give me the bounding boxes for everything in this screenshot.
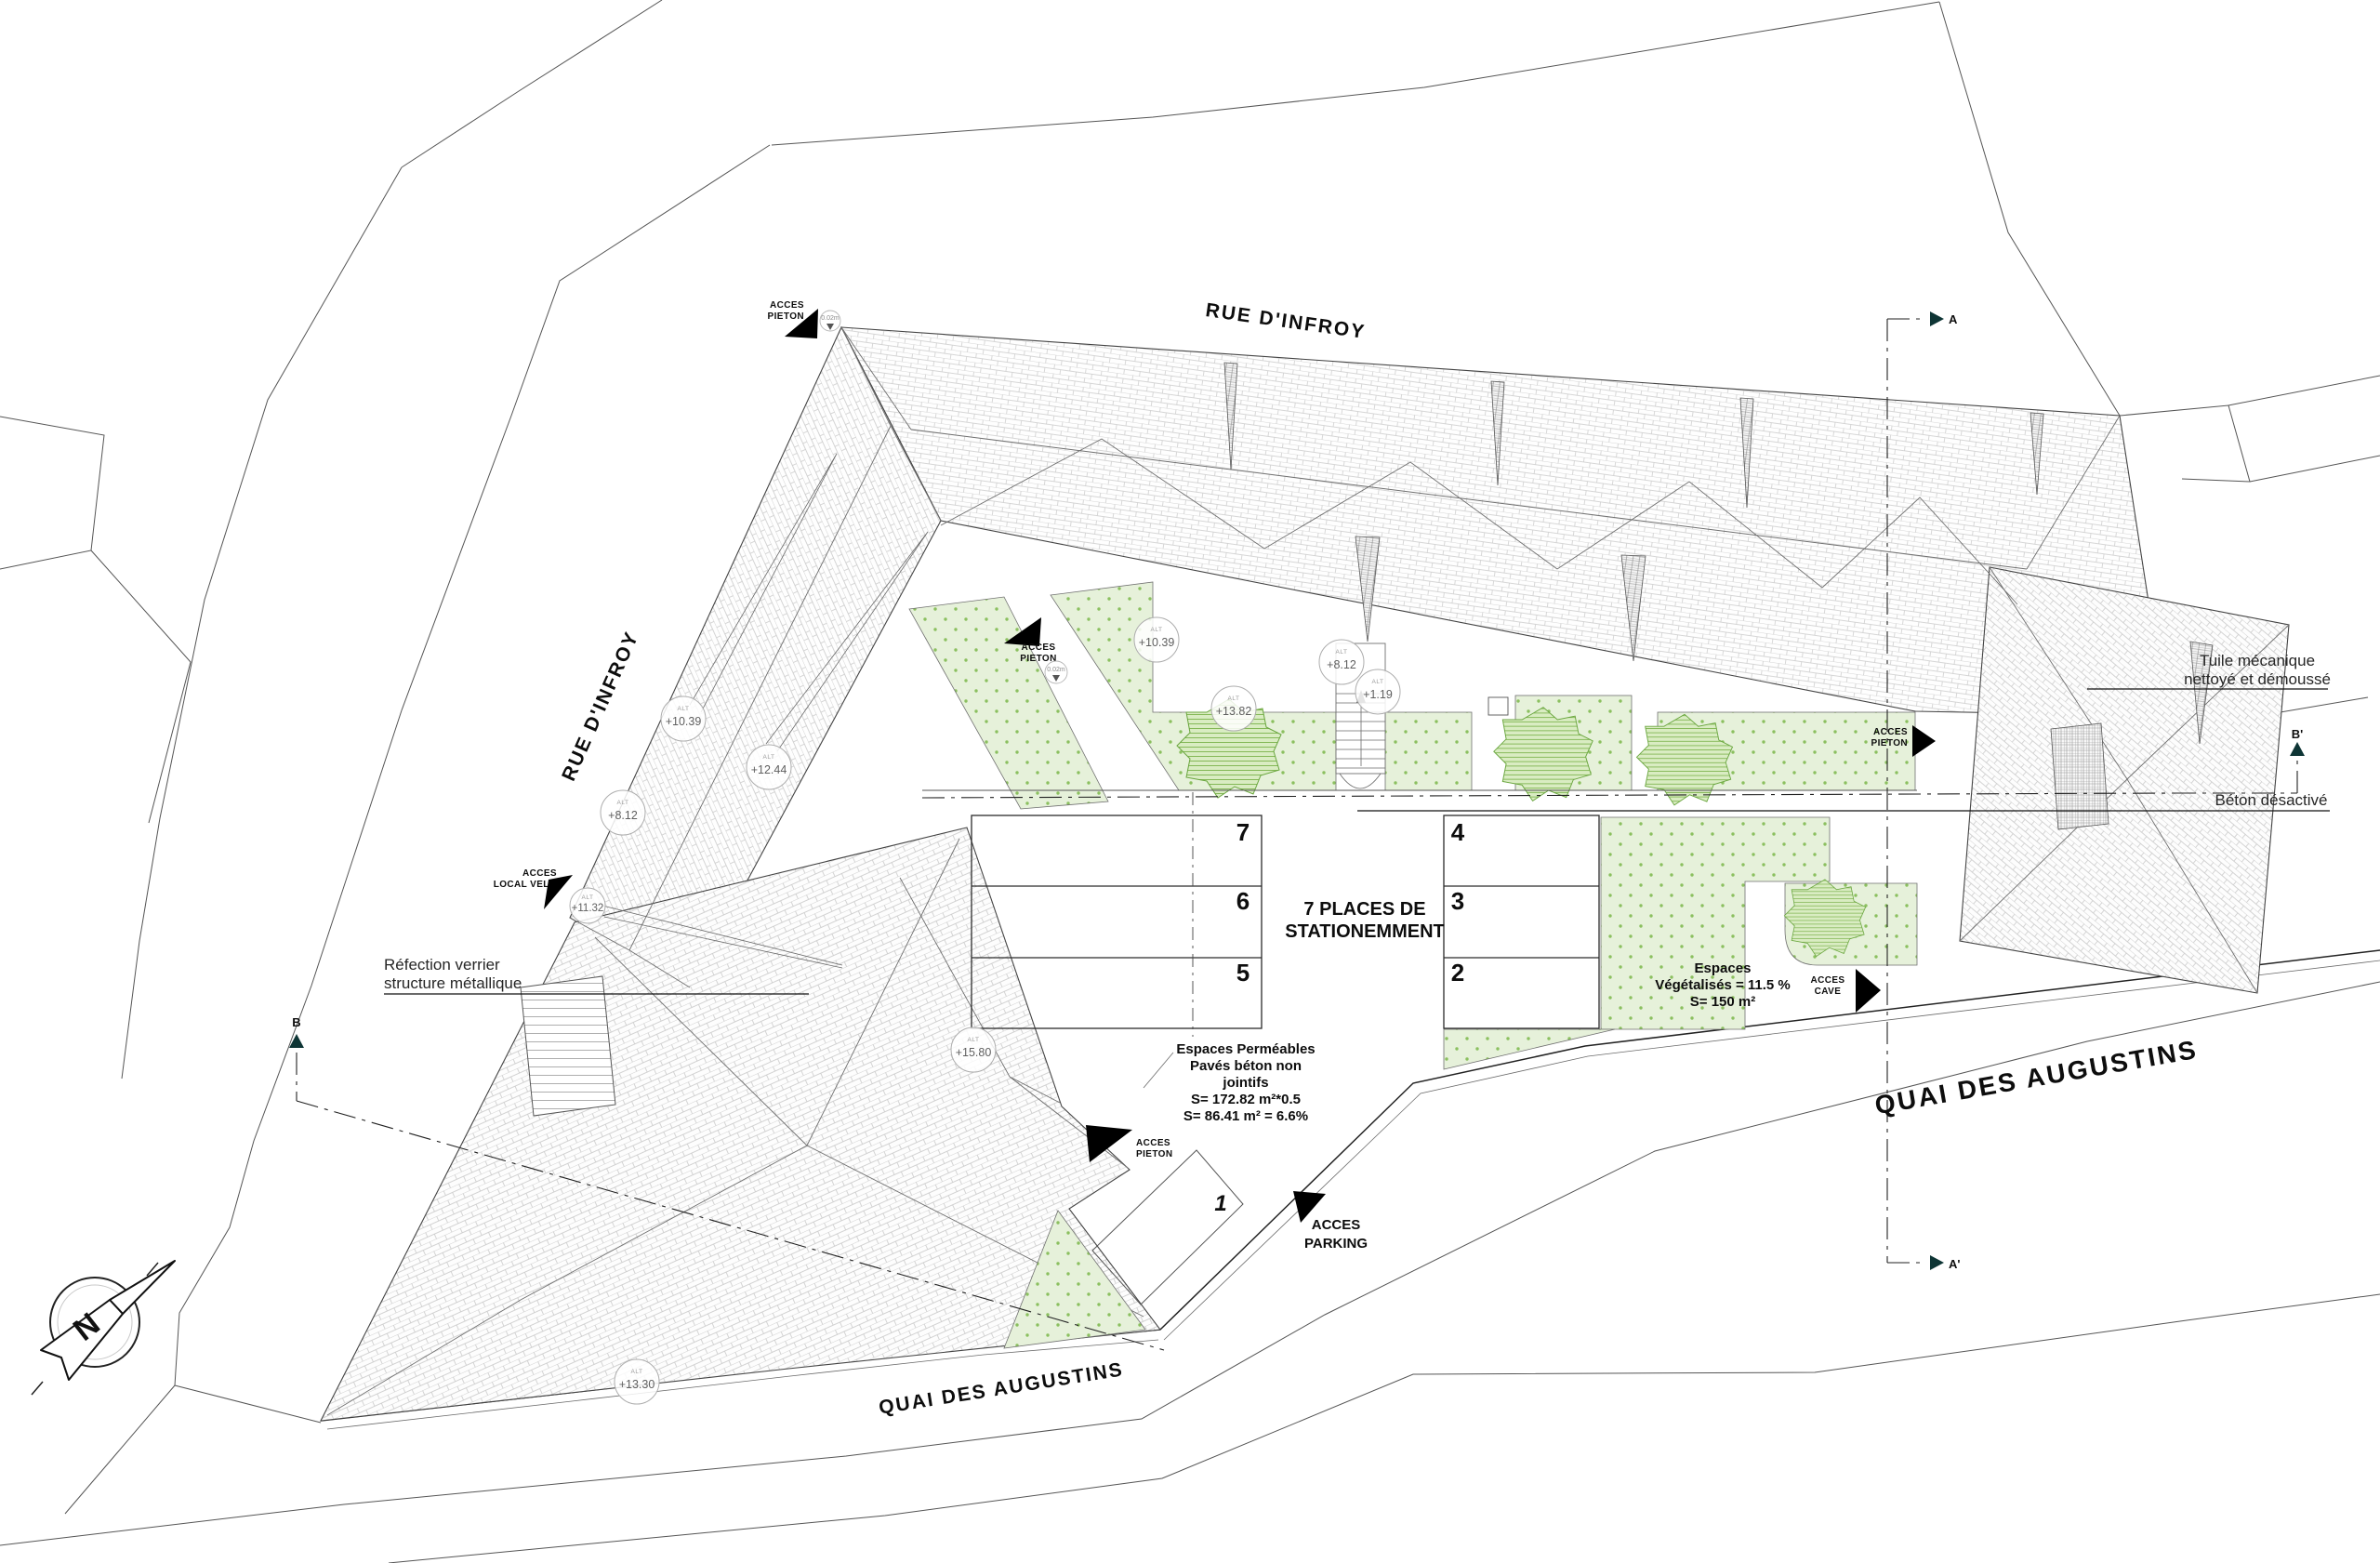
stall-number-7: 7 <box>1236 818 1249 846</box>
north-compass: N <box>32 1261 175 1395</box>
svg-text:+10.39: +10.39 <box>1139 636 1175 649</box>
svg-text:jointifs: jointifs <box>1222 1075 1268 1091</box>
street-label-rue-dinfroy-top: RUE D'INFROY <box>1204 299 1367 343</box>
level-marker: ALT+12.44 <box>747 745 791 789</box>
svg-text:ALT: ALT <box>968 1037 980 1043</box>
acces-local-velo: ACCES LOCAL VELO <box>494 868 573 909</box>
verriere-glass-roof <box>521 976 615 1116</box>
svg-text:Réfection verrier: Réfection verrier <box>384 956 500 974</box>
level-marker: ALT+15.80 <box>951 1027 996 1072</box>
svg-text:Tuile mécanique: Tuile mécanique <box>2200 652 2315 669</box>
stall-number-1: 1 <box>1214 1191 1226 1216</box>
svg-text:ALT: ALT <box>763 754 775 761</box>
svg-text:+13.82: +13.82 <box>1216 705 1252 718</box>
street-label-quai-augustins-bottom: QUAI DES AUGUSTINS <box>878 1358 1126 1418</box>
stall-number-5: 5 <box>1236 959 1249 987</box>
acces-cave: ACCES CAVE <box>1810 969 1881 1013</box>
svg-text:ALT: ALT <box>617 800 629 806</box>
stall-number-3: 3 <box>1451 887 1464 915</box>
svg-text:Béton désactivé: Béton désactivé <box>2215 791 2328 809</box>
stall-number-2: 2 <box>1451 959 1464 987</box>
section-marker-a-prime: A' <box>1930 1255 1960 1271</box>
site-plan-drawing: 7 6 5 4 3 2 1 7 PLACES DE STATIONEMMENT … <box>0 0 2380 1563</box>
green-strip-1 <box>1385 712 1472 790</box>
green-areas <box>909 582 1917 1348</box>
svg-text:+12.44: +12.44 <box>751 763 787 776</box>
street-label-rue-dinfroy-left: RUE D'INFROY <box>558 628 643 784</box>
level-marker: ALT+10.39 <box>1134 617 1179 662</box>
section-marker-b-prime: B' <box>2290 727 2305 756</box>
svg-text:ALT: ALT <box>1228 695 1240 702</box>
svg-text:ACCES: ACCES <box>1021 642 1055 653</box>
svg-text:S= 150 m²: S= 150 m² <box>1690 994 1755 1010</box>
parking-title-line2: STATIONEMMENT <box>1285 921 1444 942</box>
svg-text:0.02m: 0.02m <box>821 315 840 322</box>
svg-text:+1.19: +1.19 <box>1363 688 1393 701</box>
level-marker: ALT+8.12 <box>601 790 645 835</box>
svg-text:B: B <box>292 1015 300 1029</box>
svg-text:S= 86.41 m² = 6.6%: S= 86.41 m² = 6.6% <box>1183 1108 1308 1124</box>
svg-text:PIETON: PIETON <box>1136 1149 1172 1159</box>
svg-text:ALT: ALT <box>1372 679 1384 685</box>
svg-text:ACCES: ACCES <box>770 300 804 311</box>
svg-text:0.02m: 0.02m <box>1047 667 1065 673</box>
level-marker: ALT+8.12 <box>1319 640 1364 684</box>
note-permeable: Espaces Perméables Pavés béton non joint… <box>1144 1041 1316 1124</box>
svg-text:Espaces: Espaces <box>1695 960 1752 976</box>
level-marker: ALT+10.39 <box>661 696 706 741</box>
section-marker-b: B <box>289 1015 304 1048</box>
svg-text:ACCES: ACCES <box>522 868 557 879</box>
svg-text:Espaces Perméables: Espaces Perméables <box>1176 1041 1315 1057</box>
roof-terrace-grid <box>2051 723 2109 829</box>
svg-text:+8.12: +8.12 <box>1327 658 1356 671</box>
svg-text:ALT: ALT <box>582 894 594 901</box>
svg-text:Pavés béton non: Pavés béton non <box>1190 1058 1302 1074</box>
stall-number-4: 4 <box>1451 818 1465 846</box>
svg-text:+10.39: +10.39 <box>666 715 702 728</box>
compass-needle-icon <box>110 1261 175 1314</box>
green-wedge-south <box>1444 1029 1615 1069</box>
level-marker: ALT+11.32 <box>570 888 605 923</box>
svg-text:ALT: ALT <box>1336 649 1348 656</box>
level-marker: ALT+1.19 <box>1355 669 1400 714</box>
svg-text:ALT: ALT <box>1151 627 1163 633</box>
parking-title-line1: 7 PLACES DE <box>1303 899 1425 920</box>
level-marker: ALT+13.82 <box>1211 686 1256 731</box>
svg-text:ACCES: ACCES <box>1810 975 1844 986</box>
svg-text:+13.30: +13.30 <box>619 1378 655 1391</box>
svg-text:+8.12: +8.12 <box>608 809 638 822</box>
facade-block <box>1488 697 1508 715</box>
svg-text:S= 172.82 m²*0.5: S= 172.82 m²*0.5 <box>1191 1092 1301 1107</box>
threshold-marker: 0.02m <box>820 311 840 331</box>
svg-text:+15.80: +15.80 <box>956 1046 992 1059</box>
level-marker: ALT+13.30 <box>615 1359 659 1404</box>
svg-text:ALT: ALT <box>631 1369 643 1375</box>
svg-text:A: A <box>1949 312 1958 326</box>
site-plan-canvas: 7 6 5 4 3 2 1 7 PLACES DE STATIONEMMENT … <box>0 0 2380 1563</box>
svg-text:PARKING: PARKING <box>1304 1236 1368 1252</box>
svg-text:PIETON: PIETON <box>1871 738 1908 748</box>
svg-text:B': B' <box>2292 727 2303 741</box>
svg-text:PIETON: PIETON <box>768 311 804 322</box>
threshold-marker: 0.02m <box>1045 661 1067 683</box>
svg-text:A': A' <box>1949 1257 1960 1271</box>
acces-pieton-top: ACCES PIETON 0.02m <box>768 300 840 338</box>
svg-text:Végétalisés = 11.5 %: Végétalisés = 11.5 % <box>1655 977 1791 993</box>
svg-text:ALT: ALT <box>678 706 690 712</box>
svg-text:ACCES: ACCES <box>1873 727 1908 737</box>
acces-parking: ACCES PARKING <box>1293 1191 1368 1252</box>
svg-text:structure métallique: structure métallique <box>384 974 522 992</box>
roof-right-building <box>1960 567 2289 993</box>
svg-text:ACCES: ACCES <box>1312 1217 1361 1233</box>
svg-text:ACCES: ACCES <box>1136 1138 1170 1148</box>
street-label-quai-augustins-right: QUAI DES AUGUSTINS <box>1872 1035 2200 1120</box>
svg-text:+11.32: +11.32 <box>572 903 604 914</box>
stall-number-6: 6 <box>1236 887 1249 915</box>
svg-text:CAVE: CAVE <box>1815 987 1842 997</box>
section-marker-a: A <box>1930 311 1958 326</box>
svg-text:nettoyé et démoussé: nettoyé et démoussé <box>2184 670 2331 688</box>
building-roofs <box>321 327 2289 1421</box>
